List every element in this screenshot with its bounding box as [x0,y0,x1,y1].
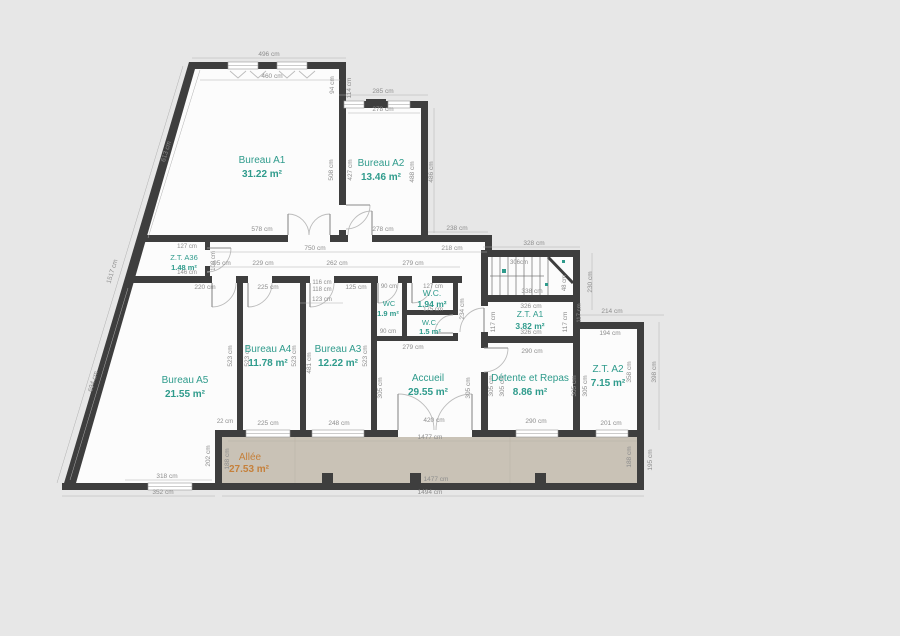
room-area: 8.86 m² [513,387,548,398]
dimension-label: 750 cm [304,245,325,252]
interior-wall [398,276,412,283]
room-name: Bureau A3 [315,344,362,355]
exterior-wall [189,62,346,69]
dimension-label: 488 cm [409,161,416,182]
dimension-label: 117 cm [577,303,583,322]
floor-plan-canvas: 496 cm 460 cm 94 cm 114 cm 285 cm 278 cm… [0,0,900,636]
stair-marker [545,283,548,286]
interior-wall [371,283,377,430]
room-area: 11.78 m² [248,358,288,369]
dimension-label: 523 cm [362,345,369,366]
exterior-wall [637,322,644,437]
dimension-label: 305 cm [465,377,472,398]
dimension-label: 125 cm [345,284,366,291]
interior-wall [334,276,378,283]
dimension-label: 305 cm [377,377,384,398]
dimension-label: 201 cm [600,420,621,427]
room-name: Bureau A2 [358,158,405,169]
dimension-label: 22 cm [217,419,233,425]
dimension-label: 94 cm [329,76,336,94]
dimension-label: 278 cm [372,226,393,233]
dimension-label: 225 cm [257,420,278,427]
interior-wall [237,283,243,430]
dimension-label: 305 cm [582,375,589,396]
dimension-label: 358 cm [626,361,633,382]
exterior-wall [481,250,580,257]
room-area: 12.22 m² [318,358,359,369]
interior-wall [215,430,222,490]
dimension-label: 117 cm [562,312,569,333]
room-name: Détente et Repas [491,373,569,384]
interior-wall [432,276,462,283]
dimension-label: 214 cm [601,308,622,315]
exterior-wall [637,437,644,490]
dimension-label: 398 cm [651,361,658,382]
dimension-label: 230 cm [587,271,594,292]
dimension-label: 285 cm [372,88,393,95]
interior-wall [205,266,210,276]
dimension-label: 306cm [510,260,528,266]
dimension-label: 118 cm [312,287,331,293]
dimension-label: 238 cm [446,225,467,232]
interior-wall [481,336,580,343]
interior-wall [339,230,346,235]
room-area: 1.9 m² [377,309,399,318]
interior-wall [236,276,248,283]
interior-wall [339,108,346,205]
dimension-label: 496 cm [258,51,279,58]
room-name: WC [383,299,396,308]
room-name: Z.T. A1 [517,309,544,319]
room-wc-2[interactable]: W.C. 1.5 m² [419,318,441,336]
dimension-label: 48 cm [562,275,568,291]
dimension-label: 90 cm [381,284,397,290]
exterior-wall [573,322,644,329]
dimension-label: 234 cm [459,298,466,319]
dimension-label: 486 cm [428,161,435,182]
dimension-label: 305 cm [571,375,578,396]
dimension-label: 262 cm [326,260,347,267]
exterior-wall [421,101,428,242]
room-area: 31.22 m² [242,169,283,180]
room-name: Z.T. A36 [170,253,198,262]
dimension-label: 279 cm [402,260,423,267]
room-area: 3.82 m² [515,321,544,331]
room-area: 1.48 m² [171,263,197,272]
dimension-label: 290 cm [525,418,546,425]
room-name: W.C. [423,288,441,298]
floor-plan-page: 496 cm 460 cm 94 cm 114 cm 285 cm 278 cm… [0,0,900,636]
dimension-label: 523 cm [291,345,298,366]
room-name: W.C. [422,318,438,327]
dimension-label: 328 cm [523,240,544,247]
dimension-label: 318 cm [156,473,177,480]
dimension-label: 1494 cm [418,489,443,496]
dimension-label: 220 cm [194,284,215,291]
exterior-wall [573,250,580,437]
dimension-label: 427 cm [347,159,354,180]
dimension-label: 188 cm [626,446,633,467]
dimension-label: 290 cm [521,348,542,355]
interior-wall [402,283,407,336]
dimension-label: 1517 cm [106,259,120,285]
dimension-label: 218 cm [441,245,462,252]
post [322,473,333,484]
room-area: 1.5 m² [419,327,441,336]
dimension-label: 278 cm [372,106,393,113]
interior-wall [453,283,458,315]
interior-wall [377,336,458,341]
room-name: Z.T. A2 [592,364,624,375]
dimension-label: 114 cm [346,78,353,99]
room-name: Bureau A5 [162,375,209,386]
dimension-label: 248 cm [328,420,349,427]
stair-marker [562,260,565,263]
dimension-label: 117 cm [490,312,497,333]
room-name: Bureau A4 [245,344,292,355]
dimension-label: 225 cm [257,284,278,291]
dimension-label: 523 cm [227,345,234,366]
dimension-label: 279 cm [402,344,423,351]
dimension-label: 420 cm [423,417,444,424]
room-name: Accueil [412,373,444,384]
dimension-label: 352 cm [152,489,173,496]
room-area: 1.94 m² [417,299,446,309]
dimension-label: 95 cm [213,260,231,267]
dimension-label: 229 cm [252,260,273,267]
interior-wall [205,276,212,283]
dimension-label: 116 cm [312,280,331,286]
dimension-label: 338 cm [521,288,542,295]
stair-marker [502,269,506,273]
dimension-label: 578 cm [251,226,272,233]
post [410,473,421,484]
interior-wall [453,333,458,336]
interior-wall [272,276,310,283]
room-name: Bureau A1 [239,155,286,166]
room-name: Allée [239,452,262,463]
post [535,473,546,484]
room-area: 29.55 m² [408,387,449,398]
dimension-label: 195 cm [647,449,654,470]
room-area: 21.55 m² [165,389,206,400]
room-zt-a36[interactable]: Z.T. A36 1.48 m² [170,253,198,272]
dimension-label: 123 cm [312,297,332,303]
dimension-label: 1477 cm [418,434,443,441]
interior-wall [133,276,205,283]
room-area: 27.53 m² [229,464,270,475]
dimension-label: 508 cm [328,159,335,180]
dimension-label: 90 cm [380,329,396,335]
interior-wall [481,295,580,302]
dimension-label: 127 cm [177,244,197,250]
dimension-label: 481 cm [306,352,313,373]
dimension-label: 1477 cm [424,476,449,483]
dimension-label: 202 cm [205,445,212,466]
interior-wall [205,242,210,250]
room-area: 13.46 m² [361,172,402,183]
interior-wall [481,372,488,430]
room-area: 7.15 m² [591,378,626,389]
dimension-label: 460 cm [261,73,282,80]
dimension-label: 194 cm [599,330,620,337]
